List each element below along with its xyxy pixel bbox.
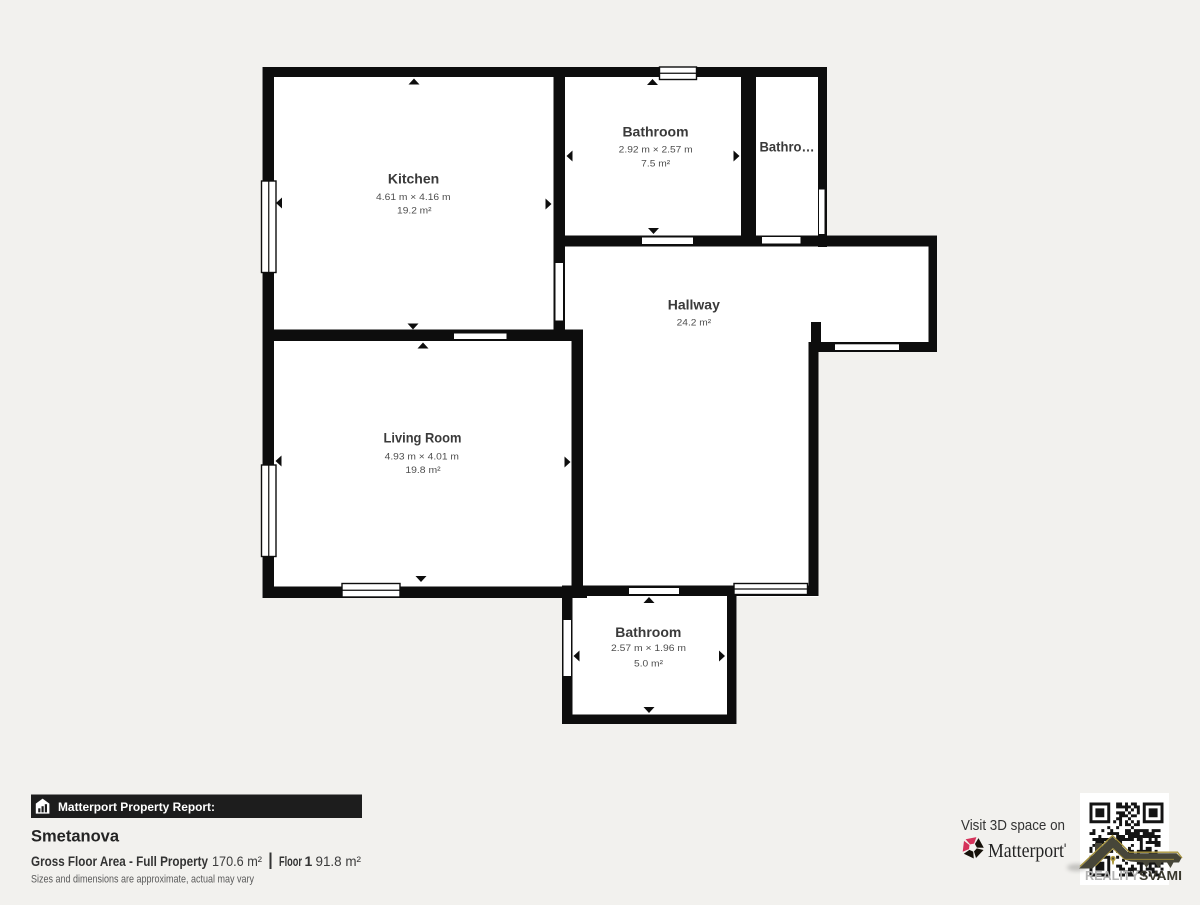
svg-text:91.8 m²: 91.8 m²: [316, 853, 362, 869]
svg-text:Gross Floor Area - Full Proper: Gross Floor Area - Full Property: [31, 853, 208, 869]
svg-text:Hallway: Hallway: [668, 296, 720, 312]
svg-text:Sizes and dimensions are appro: Sizes and dimensions are approximate, ac…: [31, 874, 254, 886]
svg-text:Visit 3D space on: Visit 3D space on: [961, 817, 1065, 834]
svg-text:Floor: Floor: [279, 853, 302, 869]
svg-text:Smetanova: Smetanova: [31, 828, 120, 846]
svg-text:19.2 m²: 19.2 m²: [397, 206, 432, 217]
svg-text:24.2 m²: 24.2 m²: [677, 318, 712, 329]
svg-text:REALITY: REALITY: [1085, 868, 1139, 883]
svg-text:19.8 m²: 19.8 m²: [405, 465, 440, 476]
svg-text:Kitchen: Kitchen: [388, 171, 439, 187]
svg-text:Matterport: Matterport: [988, 841, 1065, 862]
svg-text:1: 1: [305, 853, 313, 869]
svg-text:Living Room: Living Room: [384, 430, 462, 446]
svg-text:4.61 m × 4.16 m: 4.61 m × 4.16 m: [376, 192, 451, 203]
svg-text:Matterport Property Report:: Matterport Property Report:: [58, 800, 215, 814]
svg-text:4.93 m × 4.01 m: 4.93 m × 4.01 m: [385, 452, 459, 463]
svg-text:2.57 m × 1.96 m: 2.57 m × 1.96 m: [611, 643, 686, 654]
svg-text:Bathroom: Bathroom: [615, 624, 681, 640]
svg-text:Bathro…: Bathro…: [760, 139, 815, 155]
svg-text:5.0 m²: 5.0 m²: [634, 659, 663, 670]
svg-text:7.5 m²: 7.5 m²: [641, 158, 670, 169]
svg-text:SVAMI: SVAMI: [1139, 868, 1182, 883]
svg-text:Bathroom: Bathroom: [622, 124, 688, 140]
svg-text:2.92 m × 2.57 m: 2.92 m × 2.57 m: [619, 144, 693, 155]
svg-text:170.6 m²: 170.6 m²: [212, 853, 262, 869]
